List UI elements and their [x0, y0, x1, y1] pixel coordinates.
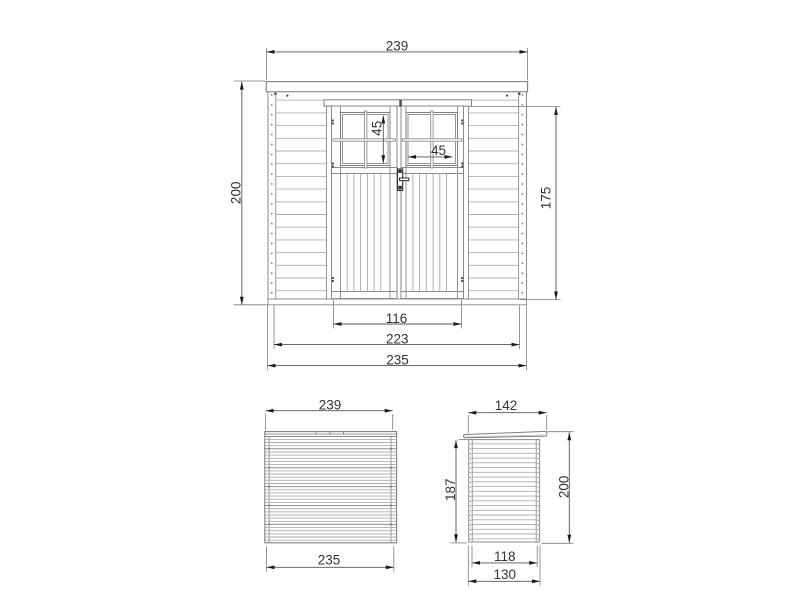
svg-text:142: 142 — [495, 398, 518, 413]
svg-text:235: 235 — [386, 352, 409, 367]
svg-text:175: 175 — [538, 187, 553, 210]
svg-text:45: 45 — [431, 143, 446, 158]
svg-text:223: 223 — [386, 331, 409, 346]
svg-text:45: 45 — [370, 121, 385, 136]
svg-text:116: 116 — [386, 311, 408, 326]
svg-text:118: 118 — [494, 549, 516, 564]
svg-text:200: 200 — [228, 182, 243, 205]
svg-text:200: 200 — [556, 476, 571, 499]
svg-text:239: 239 — [319, 397, 342, 412]
svg-text:235: 235 — [318, 553, 341, 568]
svg-text:187: 187 — [443, 478, 458, 501]
svg-text:239: 239 — [386, 39, 409, 54]
svg-text:130: 130 — [494, 567, 517, 582]
